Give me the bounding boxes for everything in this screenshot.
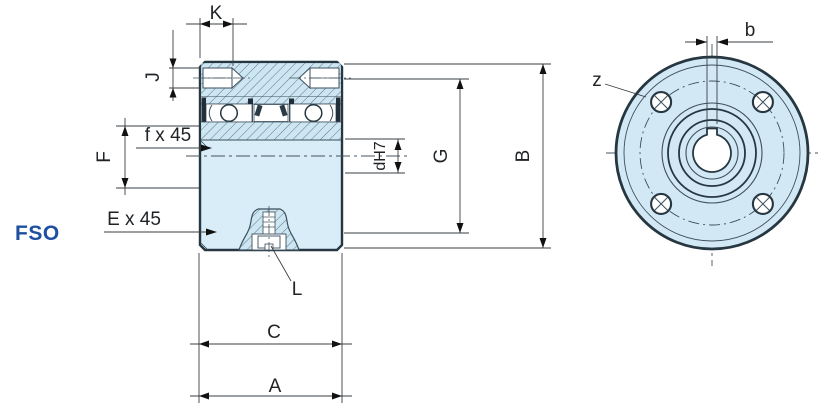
dim-label-J: J: [143, 72, 164, 82]
bearing-ball: [221, 105, 238, 122]
sprag-clutch-cage: [254, 104, 288, 121]
technical-drawing-canvas: K J F f x 45 E x 45 L C A dH7 G B: [0, 0, 820, 411]
bolt-hole: [753, 92, 773, 112]
dim-label-F: F: [94, 151, 115, 163]
bearing-ball: [305, 105, 322, 122]
bearing-seal-right: [336, 98, 341, 125]
dim-label-z: z: [592, 70, 602, 91]
front-view: b z: [592, 20, 820, 266]
bolt-hole: [651, 194, 671, 214]
dim-label-A: A: [269, 376, 282, 397]
bolt-hole: [651, 92, 671, 112]
dim-label-B: B: [513, 150, 534, 163]
side-section-view: K J F f x 45 E x 45 L C A dH7 G B: [94, 3, 551, 403]
dim-label-b: b: [745, 20, 756, 41]
dim-label-K: K: [210, 3, 223, 24]
dim-label-C: C: [267, 322, 281, 343]
product-code-label: FSO: [15, 222, 60, 245]
dim-label-dH7: dH7: [372, 141, 389, 170]
dim-label-L: L: [292, 279, 303, 300]
bearing-seal-left: [202, 98, 207, 125]
drawing-svg: K J F f x 45 E x 45 L C A dH7 G B: [0, 0, 820, 411]
dim-label-E-chamfer: E x 45: [107, 209, 161, 230]
dim-label-G: G: [431, 149, 452, 164]
bolt-hole: [753, 194, 773, 214]
inner-ring-section: [201, 122, 341, 140]
dim-label-f-chamfer: f x 45: [145, 125, 191, 146]
